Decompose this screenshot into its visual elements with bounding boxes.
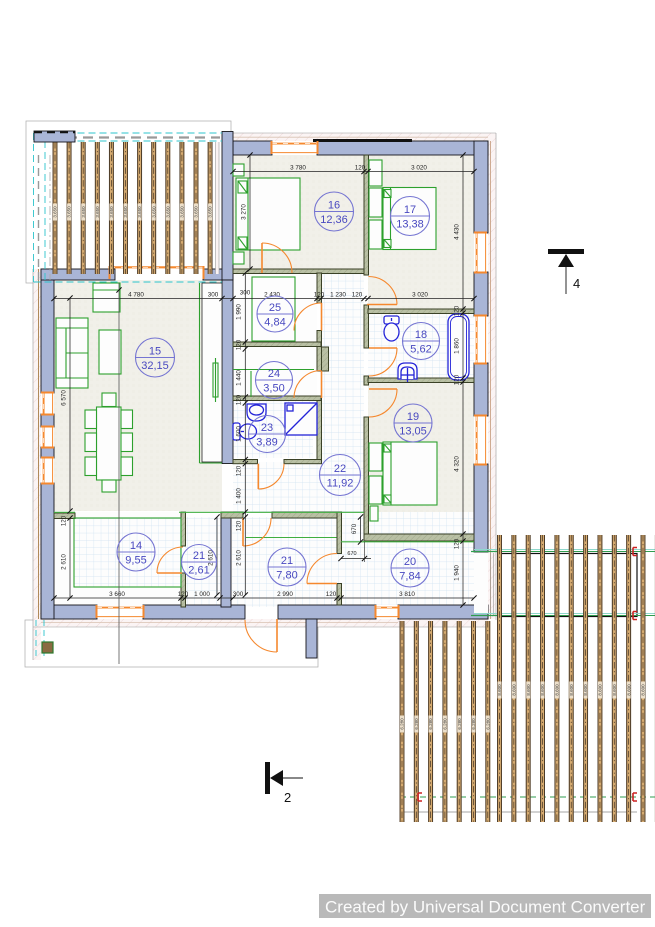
svg-text:120: 120 xyxy=(236,520,243,531)
svg-text:3.650: 3.650 xyxy=(123,206,128,218)
svg-text:7,84: 7,84 xyxy=(399,571,420,583)
svg-text:12,36: 12,36 xyxy=(320,214,348,226)
svg-text:6 570: 6 570 xyxy=(60,390,67,406)
svg-text:3.650: 3.650 xyxy=(194,206,199,218)
svg-text:6.280: 6.280 xyxy=(400,718,405,730)
svg-text:2 990: 2 990 xyxy=(277,591,293,598)
svg-text:120: 120 xyxy=(352,291,363,298)
svg-text:16: 16 xyxy=(328,200,340,212)
svg-text:120: 120 xyxy=(453,538,460,549)
svg-text:21: 21 xyxy=(193,550,205,562)
svg-text:8.600: 8.600 xyxy=(626,684,631,696)
svg-text:2: 2 xyxy=(284,790,291,805)
svg-text:3.650: 3.650 xyxy=(165,206,170,218)
svg-text:14: 14 xyxy=(130,540,142,552)
svg-text:3 780: 3 780 xyxy=(290,164,306,171)
svg-text:8.600: 8.600 xyxy=(540,684,545,696)
svg-text:120: 120 xyxy=(178,591,189,598)
svg-text:120: 120 xyxy=(314,291,325,298)
svg-text:3.650: 3.650 xyxy=(95,206,100,218)
svg-text:17: 17 xyxy=(404,204,416,216)
svg-text:6.280: 6.280 xyxy=(443,718,448,730)
svg-text:120: 120 xyxy=(453,374,460,385)
svg-text:120: 120 xyxy=(236,394,243,405)
svg-text:20: 20 xyxy=(404,556,416,568)
svg-text:3.650: 3.650 xyxy=(81,206,86,218)
svg-text:3,89: 3,89 xyxy=(256,437,277,449)
svg-text:2 610: 2 610 xyxy=(236,550,243,566)
svg-text:1 400: 1 400 xyxy=(236,488,243,504)
svg-text:120: 120 xyxy=(236,339,243,350)
svg-text:120: 120 xyxy=(236,465,243,476)
svg-text:8.600: 8.600 xyxy=(569,684,574,696)
svg-text:120: 120 xyxy=(60,515,67,526)
svg-text:8.600: 8.600 xyxy=(555,684,560,696)
svg-text:3.650: 3.650 xyxy=(180,206,185,218)
svg-text:8.600: 8.600 xyxy=(526,684,531,696)
svg-text:1 000: 1 000 xyxy=(194,591,210,598)
svg-text:4 430: 4 430 xyxy=(453,224,460,240)
svg-text:3 020: 3 020 xyxy=(412,291,428,298)
svg-text:3 810: 3 810 xyxy=(399,591,415,598)
svg-text:25: 25 xyxy=(269,302,281,314)
svg-text:8.600: 8.600 xyxy=(598,684,603,696)
svg-text:4: 4 xyxy=(573,276,580,291)
svg-text:6.280: 6.280 xyxy=(428,718,433,730)
svg-text:1 860: 1 860 xyxy=(453,338,460,354)
svg-text:7,80: 7,80 xyxy=(276,570,297,582)
svg-text:4 320: 4 320 xyxy=(453,456,460,472)
svg-text:9,55: 9,55 xyxy=(125,555,146,567)
svg-text:4,84: 4,84 xyxy=(264,317,285,329)
svg-text:3.650: 3.650 xyxy=(53,206,58,218)
svg-text:2,61: 2,61 xyxy=(188,565,209,577)
svg-text:3.650: 3.650 xyxy=(67,206,72,218)
svg-text:23: 23 xyxy=(261,422,273,434)
svg-text:8.600: 8.600 xyxy=(583,684,588,696)
svg-text:670: 670 xyxy=(351,523,358,534)
svg-text:1 600: 1 600 xyxy=(236,426,243,442)
svg-text:8.600: 8.600 xyxy=(612,684,617,696)
svg-text:22: 22 xyxy=(334,463,346,475)
svg-text:24: 24 xyxy=(268,368,280,380)
svg-text:120: 120 xyxy=(355,164,366,171)
svg-text:3,50: 3,50 xyxy=(263,383,284,395)
svg-text:15: 15 xyxy=(149,346,161,358)
svg-text:6.280: 6.280 xyxy=(485,718,490,730)
svg-text:32,15: 32,15 xyxy=(141,360,169,372)
svg-text:5,62: 5,62 xyxy=(410,344,431,356)
svg-text:300: 300 xyxy=(208,291,219,298)
svg-text:300: 300 xyxy=(233,591,244,598)
svg-text:1 440: 1 440 xyxy=(236,370,243,386)
svg-text:300: 300 xyxy=(240,290,251,297)
svg-text:3 020: 3 020 xyxy=(411,164,427,171)
svg-text:1 940: 1 940 xyxy=(453,565,460,581)
svg-text:1 990: 1 990 xyxy=(236,304,243,320)
svg-text:2 430: 2 430 xyxy=(264,291,280,298)
svg-text:19: 19 xyxy=(407,411,419,423)
svg-text:4 780: 4 780 xyxy=(128,291,144,298)
svg-text:8.600: 8.600 xyxy=(497,684,502,696)
svg-text:6.280: 6.280 xyxy=(457,718,462,730)
svg-text:8.600: 8.600 xyxy=(641,684,646,696)
svg-text:3.650: 3.650 xyxy=(137,206,142,218)
svg-text:120: 120 xyxy=(326,591,337,598)
svg-text:1 230: 1 230 xyxy=(330,291,346,298)
svg-text:6.280: 6.280 xyxy=(471,718,476,730)
svg-text:3 270: 3 270 xyxy=(240,204,247,220)
svg-text:Created by Universal Document: Created by Universal Document Converter xyxy=(325,898,646,917)
svg-text:3.650: 3.650 xyxy=(151,206,156,218)
svg-text:11,92: 11,92 xyxy=(327,478,354,490)
svg-text:3.650: 3.650 xyxy=(208,206,213,218)
svg-text:3.650: 3.650 xyxy=(109,206,114,218)
svg-text:13,38: 13,38 xyxy=(396,219,424,231)
svg-text:120: 120 xyxy=(453,305,460,316)
svg-text:3 660: 3 660 xyxy=(109,591,125,598)
svg-text:21: 21 xyxy=(281,555,293,567)
svg-text:13,05: 13,05 xyxy=(399,426,427,438)
svg-text:2 610: 2 610 xyxy=(60,554,67,570)
svg-text:8.600: 8.600 xyxy=(511,684,516,696)
svg-text:18: 18 xyxy=(415,329,427,341)
svg-text:670: 670 xyxy=(347,551,356,557)
svg-text:6.280: 6.280 xyxy=(414,718,419,730)
